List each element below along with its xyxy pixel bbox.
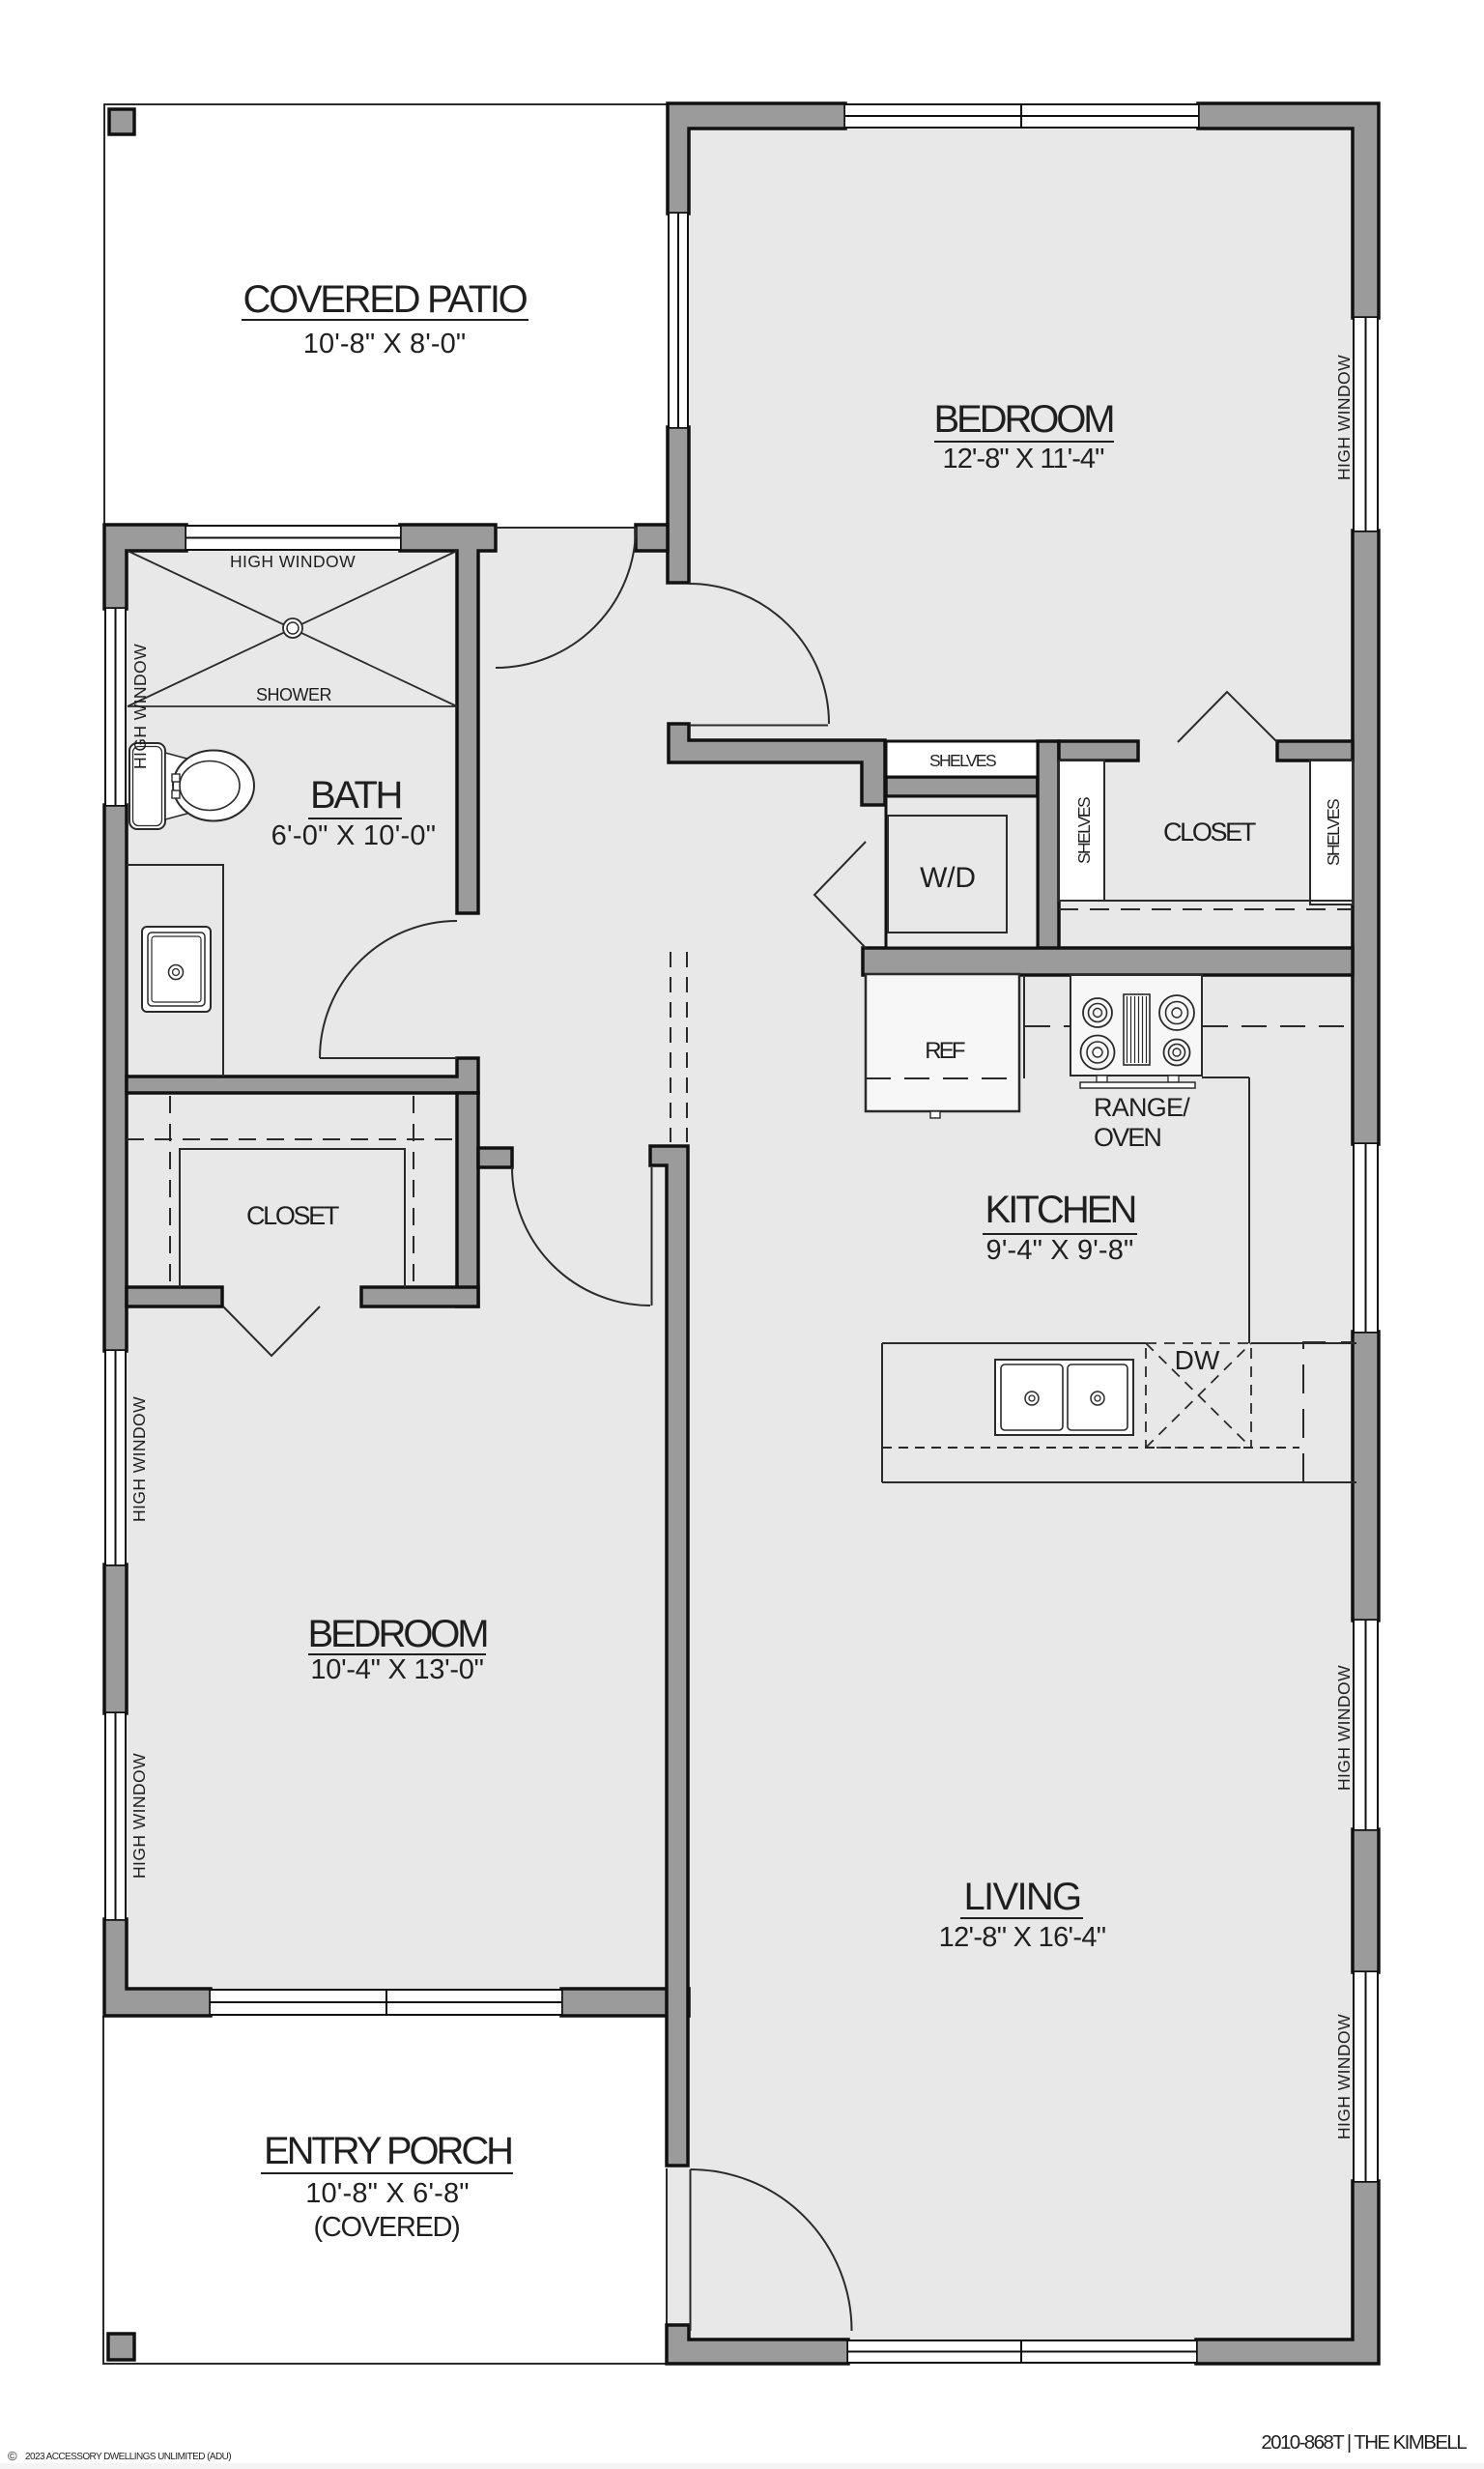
svg-text:HIGH WINDOW: HIGH WINDOW	[130, 644, 150, 769]
svg-text:(COVERED): (COVERED)	[313, 2212, 459, 2243]
svg-text:W/D: W/D	[920, 862, 976, 894]
svg-text:9'-4" X 9'-8": 9'-4" X 9'-8"	[986, 1235, 1134, 1266]
svg-text:10'-4" X 13'-0": 10'-4" X 13'-0"	[310, 1654, 483, 1685]
svg-text:SHOWER: SHOWER	[256, 685, 332, 704]
svg-text:HIGH WINDOW: HIGH WINDOW	[230, 552, 356, 571]
svg-text:SHELVES: SHELVES	[929, 751, 996, 770]
svg-text:HIGH WINDOW: HIGH WINDOW	[129, 1753, 149, 1879]
svg-text:HIGH WINDOW: HIGH WINDOW	[1334, 2014, 1354, 2139]
svg-text:OVEN: OVEN	[1094, 1123, 1160, 1152]
svg-text:HIGH WINDOW: HIGH WINDOW	[129, 1396, 149, 1522]
svg-text:12'-8" X 11'-4": 12'-8" X 11'-4"	[943, 444, 1105, 474]
svg-text:KITCHEN: KITCHEN	[985, 1189, 1135, 1231]
svg-text:2010-868T | THE KIMBELL: 2010-868T | THE KIMBELL	[1261, 2431, 1467, 2454]
svg-text:6'-0" X 10'-0": 6'-0" X 10'-0"	[271, 820, 437, 851]
svg-text:CLOSET: CLOSET	[246, 1201, 339, 1230]
svg-text:RANGE/: RANGE/	[1094, 1093, 1190, 1122]
svg-text:BEDROOM: BEDROOM	[307, 1613, 487, 1655]
svg-text:HIGH WINDOW: HIGH WINDOW	[1334, 1665, 1354, 1791]
svg-text:10'-8" X 6'-8": 10'-8" X 6'-8"	[305, 2178, 470, 2209]
svg-text:10'-8" X 8'-0": 10'-8" X 8'-0"	[303, 329, 466, 359]
svg-text:DW: DW	[1175, 1345, 1220, 1375]
svg-text:CLOSET: CLOSET	[1163, 818, 1256, 847]
svg-text:BEDROOM: BEDROOM	[933, 398, 1113, 441]
svg-text:HIGH WINDOW: HIGH WINDOW	[1334, 355, 1354, 480]
svg-text:COVERED PATIO: COVERED PATIO	[243, 278, 528, 321]
svg-text:BATH: BATH	[310, 774, 401, 817]
svg-text:©: ©	[8, 2449, 17, 2463]
svg-text:REF: REF	[925, 1038, 965, 1064]
svg-text:ENTRY PORCH: ENTRY PORCH	[264, 2130, 511, 2172]
svg-text:SHELVES: SHELVES	[1074, 797, 1094, 864]
svg-text:LIVING: LIVING	[964, 1876, 1081, 1918]
svg-text:12'-8" X 16'-4": 12'-8" X 16'-4"	[939, 1922, 1106, 1953]
svg-text:SHELVES: SHELVES	[1324, 799, 1343, 866]
svg-text:2023 ACCESSORY DWELLINGS UNLIM: 2023 ACCESSORY DWELLINGS UNLIMITED (ADU)	[25, 2452, 231, 2462]
